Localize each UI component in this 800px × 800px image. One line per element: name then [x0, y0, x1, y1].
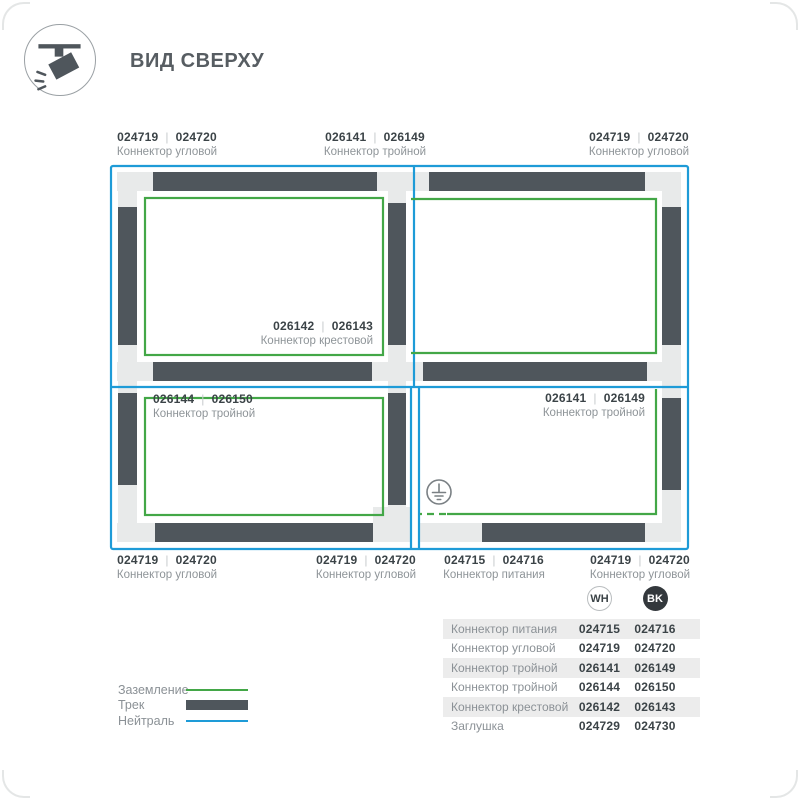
parts-table-row: Заглушка024729024730 — [443, 717, 700, 737]
part-code-bk: 024730 — [627, 719, 683, 733]
part-code-bk: 024716 — [627, 622, 683, 636]
article-codes: 024719|024720 — [559, 130, 719, 145]
part-code-wh: 024719 — [572, 641, 627, 655]
parts-table-header: WH BK — [443, 586, 700, 616]
part-code-wh: 026142 — [572, 700, 627, 714]
wh-code: 024715 — [444, 553, 485, 567]
code-separator: | — [631, 553, 648, 567]
article-codes: 024719|024720 — [560, 553, 720, 568]
part-code-bk: 026150 — [627, 680, 683, 694]
part-code-bk: 026149 — [627, 661, 683, 675]
article-codes: 026144|026150 — [153, 392, 313, 407]
legend: ЗаземлениеТрекНейтраль — [118, 682, 248, 729]
wh-code: 024719 — [589, 130, 630, 144]
legend-item-track-bar: Трек — [118, 698, 248, 714]
parts-table-row: Коннектор питания024715024716 — [443, 619, 700, 639]
part-code-wh: 026141 — [572, 661, 627, 675]
wh-code: 026141 — [545, 391, 586, 405]
wh-code: 024719 — [590, 553, 631, 567]
connector-name: Коннектор угловой — [87, 568, 247, 582]
connector-name: Коннектор питания — [414, 568, 574, 582]
article-codes: 024715|024716 — [414, 553, 574, 568]
code-separator: | — [194, 392, 211, 406]
bk-code: 024720 — [176, 553, 217, 567]
code-separator: | — [158, 553, 175, 567]
wh-code: 024719 — [316, 553, 357, 567]
part-name: Коннектор тройной — [443, 661, 572, 675]
connector-label-bottom-power: 024715|024716Коннектор питания — [414, 553, 574, 582]
code-separator: | — [485, 553, 502, 567]
track-bar-swatch — [186, 700, 248, 710]
bk-code: 024720 — [375, 553, 416, 567]
part-code-bk: 024720 — [627, 641, 683, 655]
legend-label: Заземление — [118, 683, 186, 697]
connector-label-center-cross: 026142|026143Коннектор крестовой — [213, 319, 373, 348]
connector-name: Коннектор угловой — [87, 145, 247, 159]
connector-name: Коннектор тройной — [485, 406, 645, 420]
part-code-wh: 024715 — [572, 622, 627, 636]
page: ВИД СВЕРХУ — [0, 0, 800, 800]
code-separator: | — [314, 319, 331, 333]
part-code-wh: 024729 — [572, 719, 627, 733]
code-separator: | — [630, 130, 647, 144]
part-name: Коннектор питания — [443, 622, 572, 636]
article-codes: 026142|026143 — [213, 319, 373, 334]
connector-label-mid-right: 026141|026149Коннектор тройной — [485, 391, 645, 420]
wh-code: 026142 — [273, 319, 314, 333]
parts-table-row: Коннектор тройной026144026150 — [443, 678, 700, 698]
article-codes: 026141|026149 — [295, 130, 455, 145]
wh-code: 026141 — [325, 130, 366, 144]
bk-code: 026150 — [212, 392, 253, 406]
connector-label-bottom-right: 024719|024720Коннектор угловой — [560, 553, 720, 582]
neutral-line-swatch — [186, 720, 248, 723]
bk-code: 024716 — [503, 553, 544, 567]
wh-code: 026144 — [153, 392, 194, 406]
article-codes: 026141|026149 — [485, 391, 645, 406]
bk-code: 024720 — [648, 130, 689, 144]
connector-label-top-right: 024719|024720Коннектор угловой — [559, 130, 719, 159]
part-name: Коннектор крестовой — [443, 700, 572, 714]
ground-symbol-icon — [427, 480, 451, 504]
bk-code: 024720 — [176, 130, 217, 144]
code-separator: | — [586, 391, 603, 405]
connector-name: Коннектор угловой — [560, 568, 720, 582]
connector-name: Коннектор угловой — [559, 145, 719, 159]
bk-code: 024720 — [649, 553, 690, 567]
connector-name: Коннектор тройной — [153, 407, 313, 421]
legend-item-neutral-line: Нейтраль — [118, 713, 248, 729]
part-name: Коннектор тройной — [443, 680, 572, 694]
wh-column-badge: WH — [587, 586, 612, 611]
bk-column-badge: BK — [643, 586, 668, 611]
part-code-wh: 026144 — [572, 680, 627, 694]
part-code-bk: 026143 — [627, 700, 683, 714]
wh-code: 024719 — [117, 553, 158, 567]
legend-label: Трек — [118, 698, 186, 712]
parts-table: WH BK Коннектор питания024715024716Конне… — [443, 586, 700, 736]
connector-label-top-left: 024719|024720Коннектор угловой — [87, 130, 247, 159]
ground-line-swatch — [186, 689, 248, 692]
code-separator: | — [158, 130, 175, 144]
parts-table-row: Коннектор тройной026141026149 — [443, 658, 700, 678]
part-name: Заглушка — [443, 719, 572, 733]
legend-item-ground-line: Заземление — [118, 682, 248, 698]
part-name: Коннектор угловой — [443, 641, 572, 655]
connector-label-mid-left: 026144|026150Коннектор тройной — [153, 392, 313, 421]
bk-code: 026143 — [332, 319, 373, 333]
parts-table-row: Коннектор крестовой026142026143 — [443, 697, 700, 717]
bk-code: 026149 — [604, 391, 645, 405]
wh-code: 024719 — [117, 130, 158, 144]
connector-name: Коннектор крестовой — [213, 334, 373, 348]
legend-label: Нейтраль — [118, 714, 186, 728]
code-separator: | — [357, 553, 374, 567]
article-codes: 024719|024720 — [87, 553, 247, 568]
connector-label-bottom-left: 024719|024720Коннектор угловой — [87, 553, 247, 582]
bk-code: 026149 — [384, 130, 425, 144]
parts-table-row: Коннектор угловой024719024720 — [443, 639, 700, 659]
article-codes: 024719|024720 — [87, 130, 247, 145]
connector-name: Коннектор тройной — [295, 145, 455, 159]
connector-label-top-center: 026141|026149Коннектор тройной — [295, 130, 455, 159]
code-separator: | — [366, 130, 383, 144]
